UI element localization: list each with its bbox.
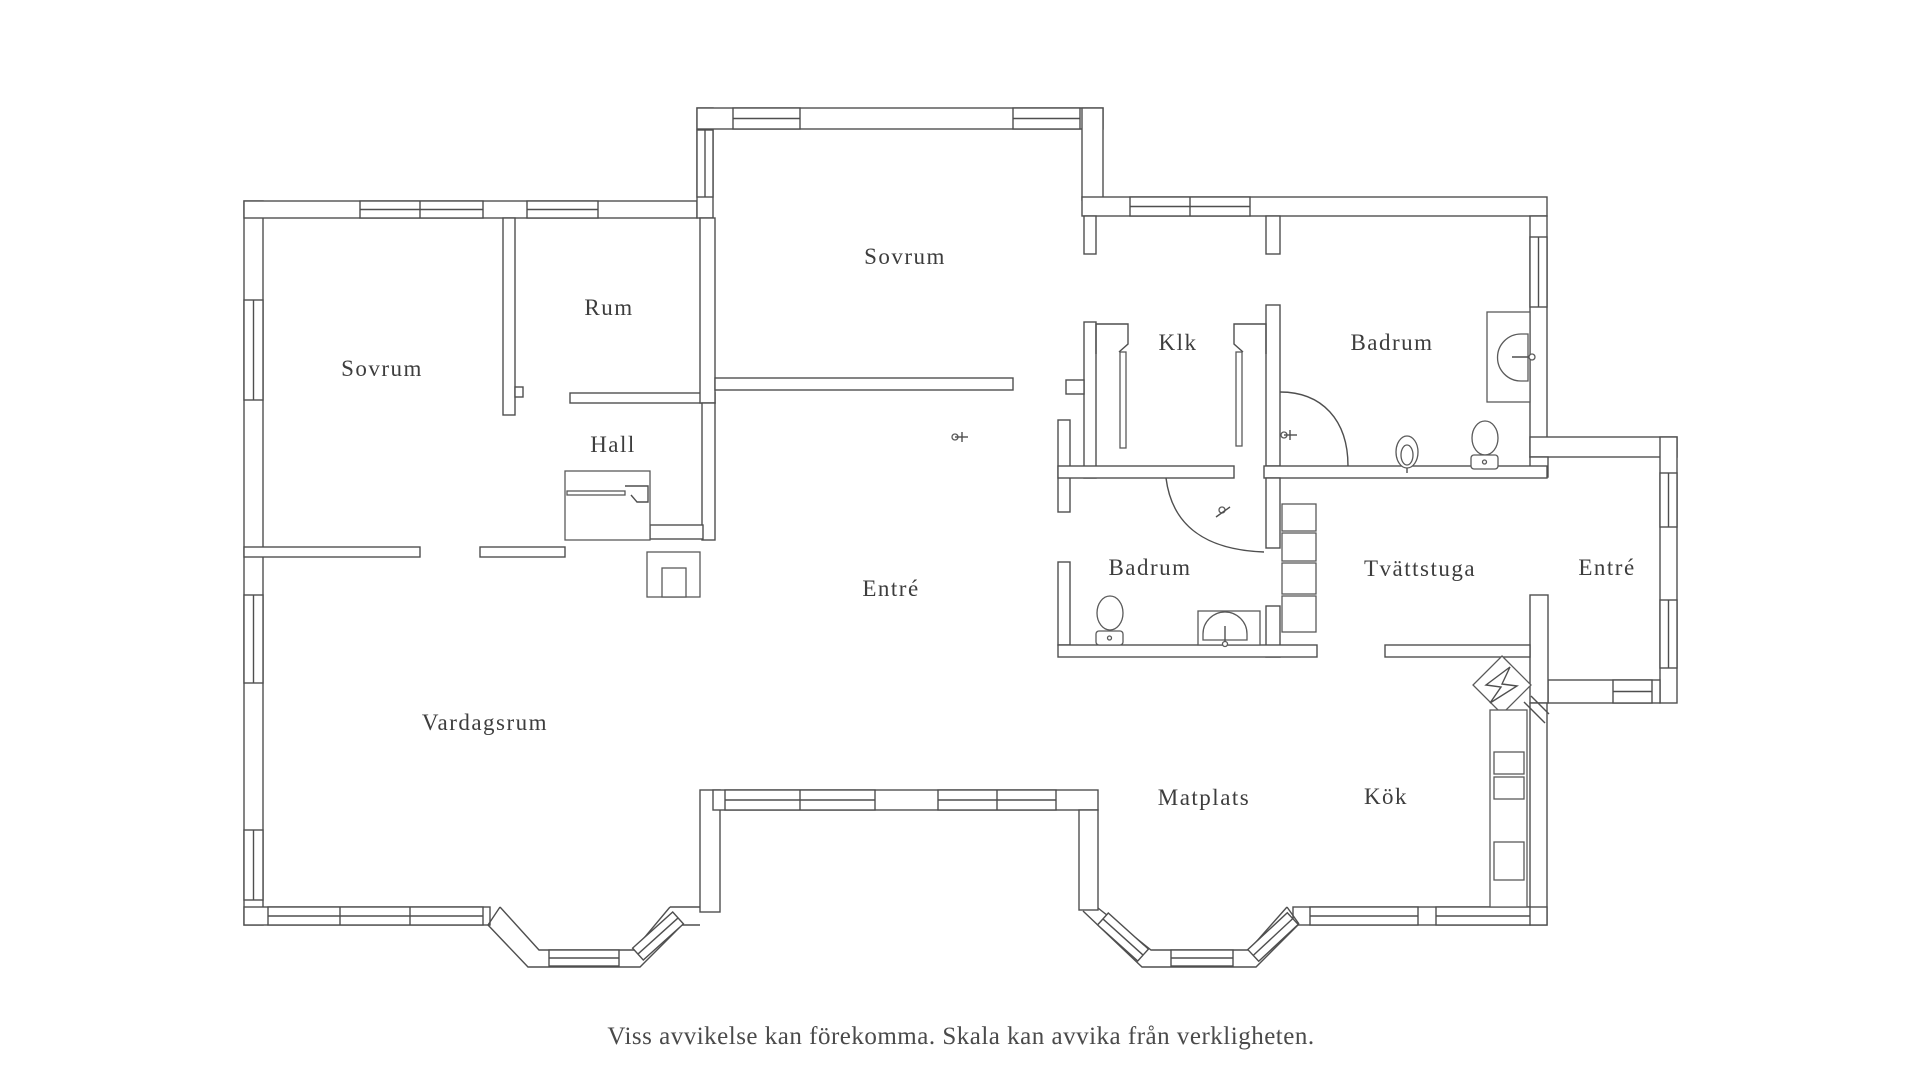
room-label-sovrum-top: Sovrum — [864, 244, 946, 269]
window — [244, 830, 263, 900]
tap-icon — [1281, 430, 1297, 440]
kitchen-counter-icon — [1490, 710, 1527, 907]
window — [725, 790, 875, 810]
disclaimer-text: Viss avvikelse kan förekomma. Skala kan … — [607, 1023, 1314, 1050]
room-label-badrum-top: Badrum — [1350, 330, 1433, 355]
room-labels: Sovrum Rum Sovrum Klk Badrum Hall Entré … — [341, 244, 1636, 810]
window — [244, 300, 263, 400]
room-label-rum: Rum — [584, 295, 633, 320]
room-label-sovrum-left: Sovrum — [341, 356, 423, 381]
window — [1098, 913, 1149, 961]
exterior-walls — [244, 108, 1677, 967]
window — [1310, 907, 1418, 925]
washing-machines-icon — [1282, 504, 1316, 632]
sink-icon — [1487, 312, 1535, 402]
room-label-kok: Kök — [1364, 784, 1408, 809]
room-label-tvattstuga: Tvättstuga — [1364, 556, 1476, 581]
sink-icon — [1198, 611, 1260, 647]
window — [527, 201, 598, 218]
window — [1436, 907, 1530, 925]
window — [1013, 108, 1080, 129]
floorplan-page: Sovrum Rum Sovrum Klk Badrum Hall Entré … — [0, 0, 1920, 1080]
window — [733, 108, 800, 129]
room-label-hall: Hall — [590, 432, 636, 457]
shower-icon — [1166, 478, 1264, 552]
room-label-matplats: Matplats — [1158, 785, 1251, 810]
window — [938, 790, 1056, 810]
room-label-badrum-lower: Badrum — [1108, 555, 1191, 580]
tap-icon — [952, 432, 968, 442]
wardrobe-icon — [565, 471, 650, 540]
windows — [244, 108, 1677, 966]
window — [1530, 237, 1547, 307]
floorplan-drawing: Sovrum Rum Sovrum Klk Badrum Hall Entré … — [0, 0, 1920, 1080]
window — [633, 912, 684, 960]
room-label-entre-right: Entré — [1578, 555, 1635, 580]
toilet-icon — [1471, 421, 1498, 469]
window — [1660, 600, 1677, 668]
window — [697, 130, 713, 197]
shower-icon — [1280, 392, 1348, 466]
window — [1660, 473, 1677, 527]
toilet-icon — [1096, 596, 1123, 645]
room-label-entre-center: Entré — [862, 576, 919, 601]
room-label-klk: Klk — [1159, 330, 1198, 355]
window — [244, 595, 263, 683]
chimney-icon — [647, 552, 700, 597]
window — [268, 907, 483, 925]
window — [360, 201, 483, 218]
window — [1171, 950, 1233, 966]
window — [549, 950, 619, 966]
window — [1248, 913, 1298, 962]
room-label-vardagsrum: Vardagsrum — [422, 710, 548, 735]
tap-icon — [1216, 507, 1230, 517]
window — [1613, 680, 1652, 703]
window — [1130, 197, 1250, 216]
